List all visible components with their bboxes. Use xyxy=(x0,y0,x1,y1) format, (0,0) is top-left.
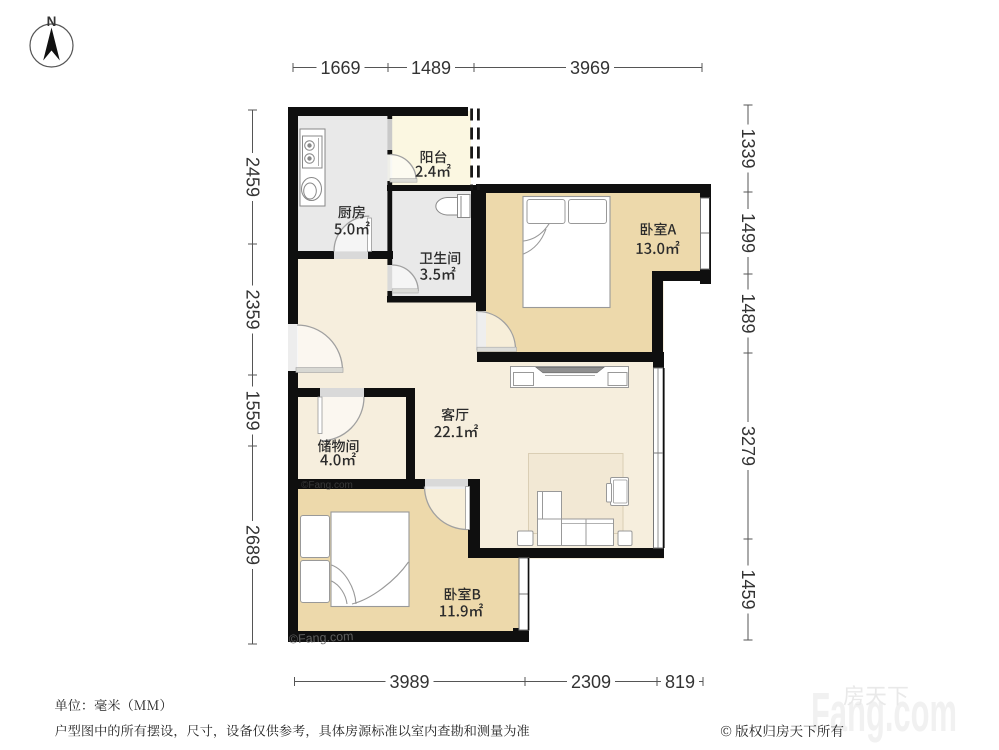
svg-text:3969: 3969 xyxy=(570,58,610,78)
svg-text:3279: 3279 xyxy=(738,426,758,466)
svg-text:N: N xyxy=(47,14,57,29)
svg-text:2459: 2459 xyxy=(243,157,263,197)
svg-text:2689: 2689 xyxy=(243,525,263,565)
svg-text:1489: 1489 xyxy=(411,58,451,78)
svg-text:1459: 1459 xyxy=(738,569,758,609)
svg-text:1559: 1559 xyxy=(243,390,263,430)
svg-text:819: 819 xyxy=(665,672,695,692)
svg-text:3989: 3989 xyxy=(389,672,429,692)
svg-text:2359: 2359 xyxy=(243,289,263,329)
svg-text:1339: 1339 xyxy=(738,128,758,168)
svg-text:2309: 2309 xyxy=(571,672,611,692)
svg-text:1499: 1499 xyxy=(738,213,758,253)
svg-text:1489: 1489 xyxy=(738,293,758,333)
svg-text:Fang.com: Fang.com xyxy=(811,681,957,743)
svg-text:1669: 1669 xyxy=(320,58,360,78)
svg-text:©Fang.com: ©Fang.com xyxy=(301,480,353,491)
